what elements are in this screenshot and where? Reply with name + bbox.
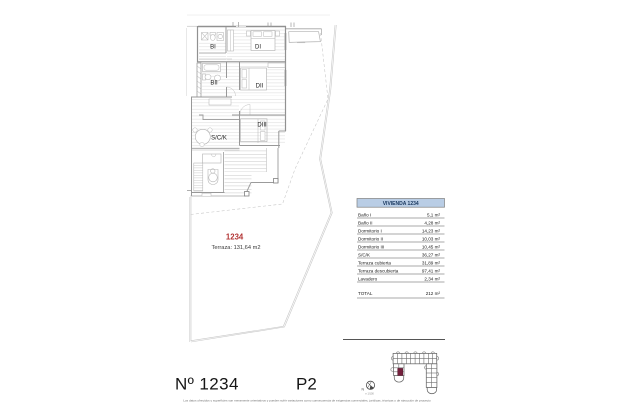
svg-text:10,45 m²: 10,45 m² — [422, 244, 441, 249]
svg-text:DII: DII — [256, 84, 264, 90]
svg-text:Nº 1234: Nº 1234 — [175, 375, 239, 394]
svg-text:N: N — [362, 387, 365, 391]
svg-text:Los datos ofrecidos y superfic: Los datos ofrecidos y superficies son me… — [183, 398, 431, 402]
svg-text:Dormitorio II: Dormitorio II — [358, 236, 383, 241]
svg-text:Dormitorio I: Dormitorio I — [358, 228, 382, 233]
svg-text:Lavadero: Lavadero — [358, 276, 378, 281]
svg-text:10,03 m²: 10,03 m² — [422, 236, 441, 241]
svg-text:S/C/K: S/C/K — [358, 252, 371, 257]
svg-text:5,1 m²: 5,1 m² — [427, 212, 440, 217]
svg-text:Terraza: 131,64 m2: Terraza: 131,64 m2 — [211, 245, 260, 251]
svg-text:Baño I: Baño I — [358, 212, 371, 217]
svg-text:P2: P2 — [296, 375, 317, 394]
svg-text:2,34 m²: 2,34 m² — [424, 276, 440, 281]
svg-text:Dormitorio III: Dormitorio III — [358, 244, 384, 249]
svg-text:97,41 m²: 97,41 m² — [422, 268, 441, 273]
svg-text:36,27 m²: 36,27 m² — [422, 252, 441, 257]
svg-text:DIII: DIII — [257, 123, 267, 129]
svg-text:VIVIENDA 1234: VIVIENDA 1234 — [383, 201, 419, 207]
svg-text:31,89 m²: 31,89 m² — [422, 260, 441, 265]
svg-text:DI: DI — [255, 45, 261, 51]
svg-text:14,23 m²: 14,23 m² — [422, 228, 441, 233]
svg-text:4,28 m²: 4,28 m² — [424, 220, 440, 225]
svg-text:e 1/100: e 1/100 — [365, 393, 374, 396]
svg-text:S/C/K: S/C/K — [211, 136, 227, 142]
svg-text:Terraza cubierta: Terraza cubierta — [358, 260, 391, 265]
svg-text:212 m²: 212 m² — [426, 291, 441, 296]
svg-text:BI: BI — [210, 45, 216, 51]
svg-text:Terraza descubierta: Terraza descubierta — [358, 268, 399, 273]
svg-text:BII: BII — [210, 81, 218, 87]
svg-text:TOTAL: TOTAL — [358, 291, 373, 296]
svg-text:Baño II: Baño II — [358, 220, 373, 225]
svg-text:1234: 1234 — [226, 233, 244, 242]
